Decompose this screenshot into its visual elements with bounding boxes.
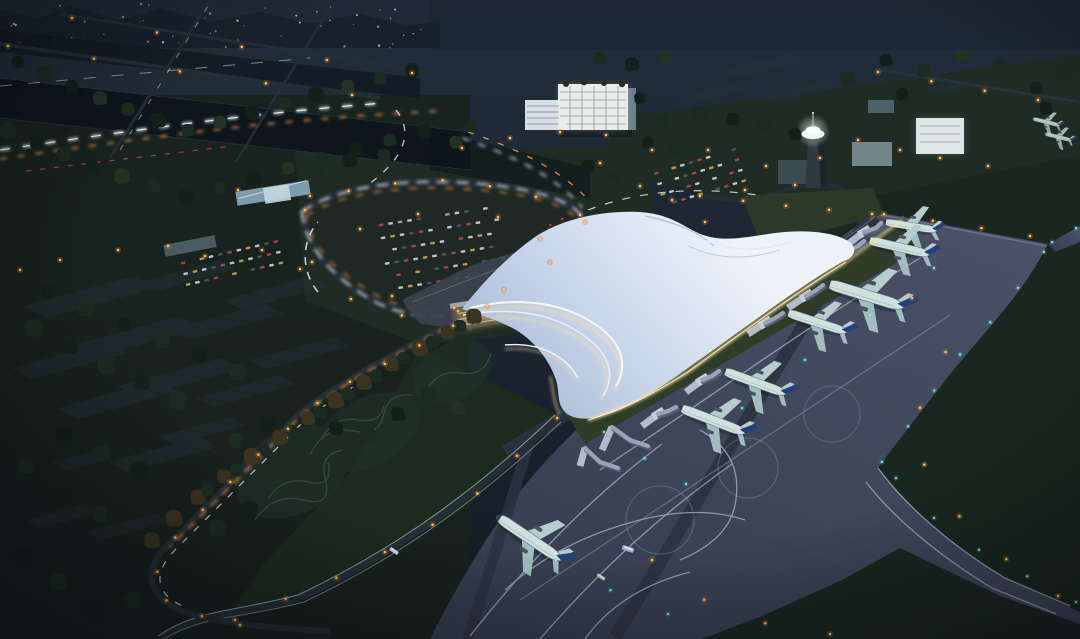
airport-aerial-scene <box>0 0 1080 639</box>
rendering-stage <box>0 0 1080 639</box>
vignette-overlay <box>0 0 1080 639</box>
